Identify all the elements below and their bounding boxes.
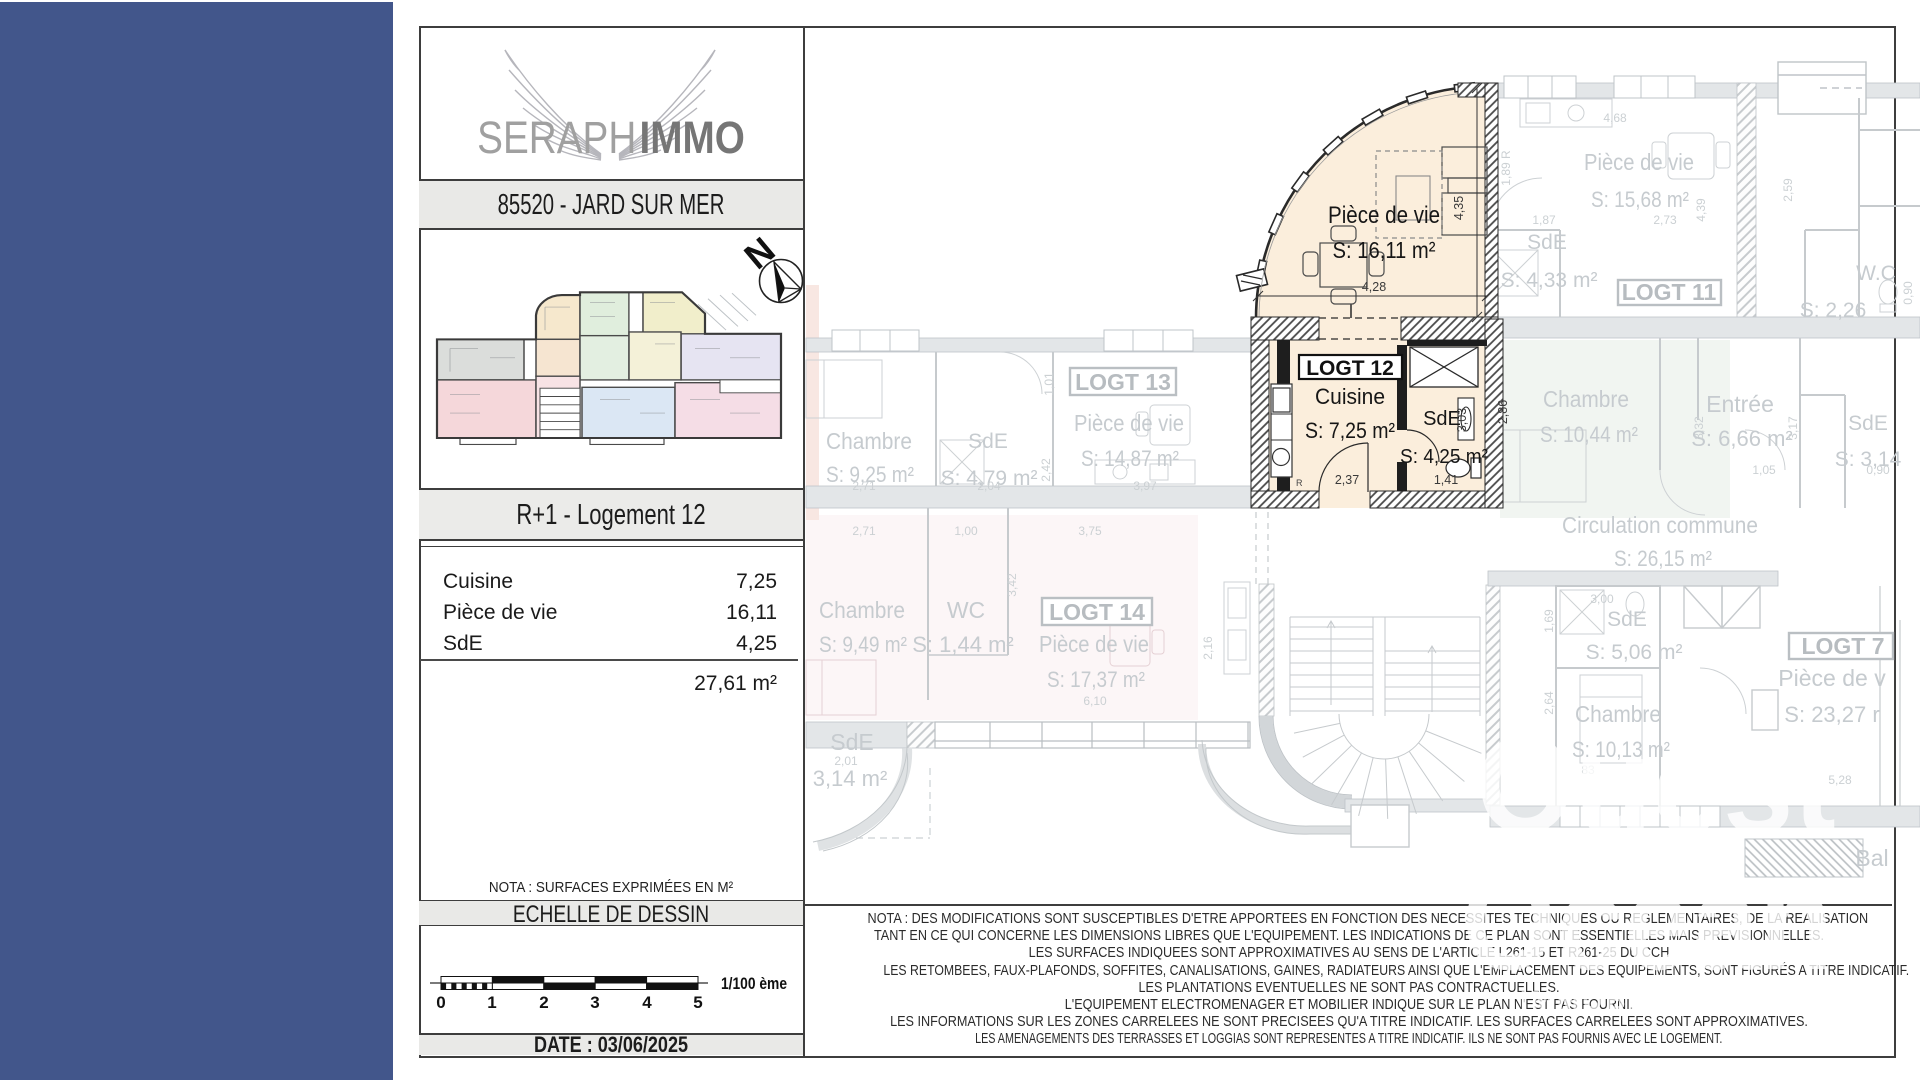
svg-text:0,90: 0,90 [1866, 463, 1890, 477]
svg-text:SdE: SdE [1607, 608, 1647, 631]
svg-text:LOGT 11: LOGT 11 [1622, 279, 1717, 305]
svg-text:LOGT 12: LOGT 12 [1306, 357, 1394, 380]
svg-text:S: 16,11 m²: S: 16,11 m² [1333, 237, 1436, 263]
svg-text:1,87: 1,87 [1532, 213, 1556, 227]
svg-text:S: 4,25 m²: S: 4,25 m² [1400, 446, 1488, 468]
svg-text:W.C: W.C [1856, 262, 1896, 285]
svg-text:S: 9,49 m²: S: 9,49 m² [819, 632, 907, 657]
svg-text:3,75: 3,75 [1078, 524, 1102, 538]
svg-text:1,89 R: 1,89 R [1499, 150, 1513, 186]
svg-text:S: 14,87 m²: S: 14,87 m² [1081, 446, 1179, 471]
svg-text:3,14 m²: 3,14 m² [813, 766, 888, 791]
svg-text:Pièce de vie: Pièce de vie [1584, 149, 1694, 175]
svg-text:Chambre: Chambre [826, 428, 912, 454]
svg-text:Chambre: Chambre [1543, 386, 1629, 412]
svg-text:S: 7,25 m²: S: 7,25 m² [1305, 418, 1395, 443]
svg-text:2,16: 2,16 [1201, 636, 1215, 660]
svg-text:4,28: 4,28 [1362, 280, 1386, 294]
svg-text:4,39: 4,39 [1694, 198, 1708, 222]
svg-text:S: 5,06 m²: S: 5,06 m² [1586, 641, 1683, 664]
svg-text:WC: WC [947, 597, 985, 623]
svg-text:SdE: SdE [968, 430, 1008, 453]
svg-text:1,05: 1,05 [1752, 463, 1776, 477]
svg-text:3,17: 3,17 [1786, 416, 1800, 440]
svg-text:2,71: 2,71 [852, 479, 876, 493]
svg-text:3,03: 3,03 [1455, 408, 1469, 432]
svg-text:2,42: 2,42 [1039, 458, 1053, 482]
svg-text:4,35: 4,35 [1452, 196, 1466, 220]
svg-text:3,42: 3,42 [1005, 573, 1019, 597]
svg-text:1,01: 1,01 [1042, 372, 1056, 396]
svg-text:2,71: 2,71 [852, 524, 876, 538]
svg-text:S: 6,66 m²: S: 6,66 m² [1691, 426, 1792, 451]
svg-text:S: 4,33 m²: S: 4,33 m² [1501, 269, 1598, 292]
svg-text:Pièce de vie: Pièce de vie [1074, 410, 1184, 436]
svg-text:0,90: 0,90 [1901, 281, 1915, 305]
svg-text:2,04: 2,04 [977, 479, 1001, 493]
svg-text:3,32: 3,32 [1692, 416, 1706, 440]
svg-text:Chambre: Chambre [819, 597, 905, 623]
svg-text:2,73: 2,73 [1653, 213, 1677, 227]
svg-text:3,00: 3,00 [1590, 592, 1614, 606]
svg-text:S: 15,68 m²: S: 15,68 m² [1591, 187, 1689, 212]
svg-text:Pièce de vie: Pièce de vie [1328, 202, 1440, 229]
svg-text:1,69: 1,69 [1542, 609, 1556, 633]
svg-text:2,37: 2,37 [1335, 473, 1359, 487]
svg-text:Cuisine: Cuisine [1315, 384, 1385, 409]
svg-text:R: R [1296, 478, 1303, 488]
svg-text:Circulation commune: Circulation commune [1562, 512, 1758, 538]
svg-text:SdE: SdE [1527, 231, 1567, 254]
svg-text:LOGT 13: LOGT 13 [1075, 369, 1171, 395]
svg-text:Pièce de vie: Pièce de vie [1039, 631, 1149, 657]
svg-text:S: 2,26: S: 2,26 [1800, 299, 1867, 322]
svg-text:S: 26,15 m²: S: 26,15 m² [1614, 546, 1712, 571]
svg-text:2,86: 2,86 [1496, 400, 1510, 424]
svg-text:2,59: 2,59 [1781, 178, 1795, 202]
svg-text:SdE: SdE [830, 729, 873, 755]
svg-text:6,10: 6,10 [1083, 694, 1107, 708]
svg-text:2,01: 2,01 [834, 754, 858, 768]
svg-text:3,97: 3,97 [1133, 479, 1157, 493]
svg-text:1,41: 1,41 [1434, 473, 1458, 487]
svg-text:S: 10,44 m²: S: 10,44 m² [1540, 422, 1638, 447]
svg-text:Entrée: Entrée [1706, 391, 1774, 417]
svg-text:Pièce de v: Pièce de v [1778, 665, 1886, 691]
svg-text:1,00: 1,00 [954, 524, 978, 538]
svg-text:SdE: SdE [1848, 412, 1888, 435]
svg-text:4,68: 4,68 [1603, 111, 1627, 125]
svg-text:S: 17,37 m²: S: 17,37 m² [1047, 667, 1145, 692]
svg-text:LOGT 14: LOGT 14 [1049, 599, 1145, 625]
svg-text:LOGT 7: LOGT 7 [1801, 633, 1884, 659]
svg-text:S: 1,44 m²: S: 1,44 m² [912, 632, 1013, 657]
